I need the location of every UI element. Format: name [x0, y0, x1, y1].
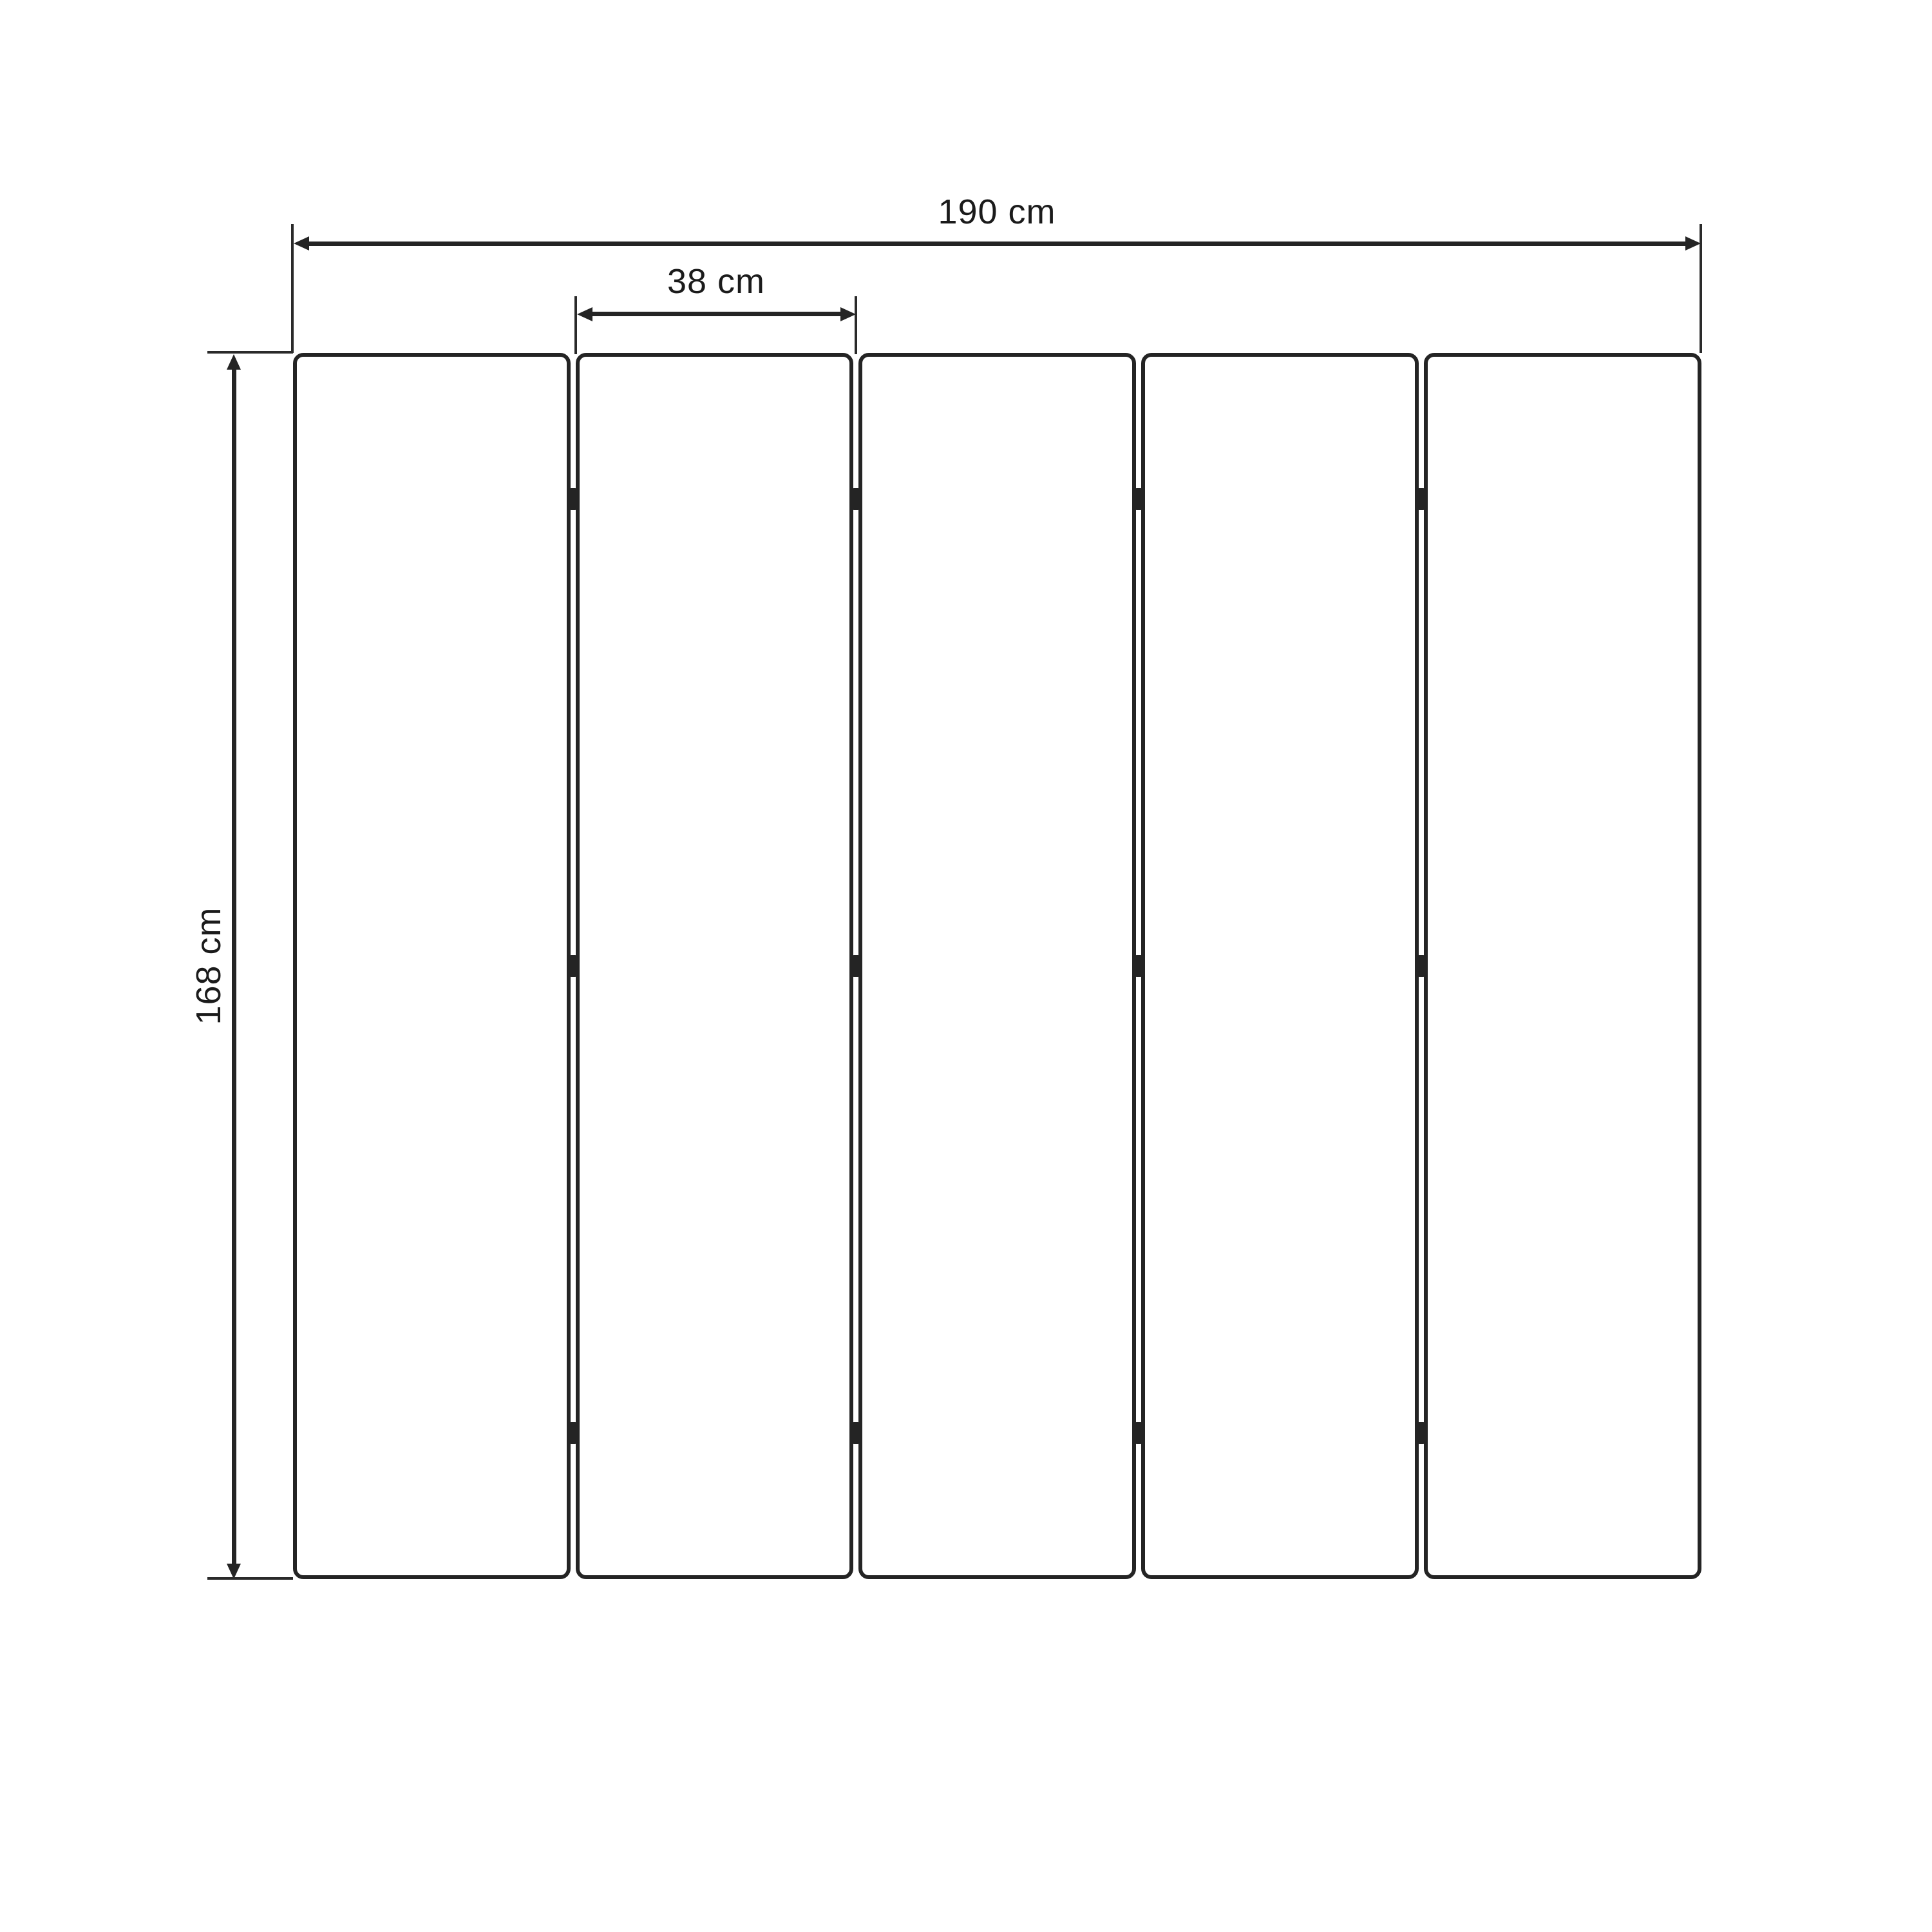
arrowhead-left-icon	[577, 307, 592, 321]
panel-1	[293, 353, 571, 1579]
height-extension-line-top	[207, 351, 293, 354]
hinge-icon	[569, 488, 578, 510]
height-dimension-line	[232, 367, 236, 1566]
panel-width-extension-line-left	[574, 296, 577, 354]
panel-5	[1424, 353, 1701, 1579]
total-width-label: 190 cm	[900, 193, 1094, 231]
panel-width-dimension-line	[591, 312, 842, 316]
hinge-icon	[1417, 488, 1426, 510]
panel-width-extension-line-right	[855, 296, 857, 354]
panel-2	[576, 353, 853, 1579]
panel-3	[858, 353, 1136, 1579]
hinge-icon	[851, 955, 860, 977]
panel-width-label: 38 cm	[620, 262, 813, 301]
hinge-icon	[569, 955, 578, 977]
arrowhead-left-icon	[294, 236, 309, 251]
arrowhead-right-icon	[840, 307, 856, 321]
hinge-icon	[1134, 955, 1143, 977]
height-extension-line-bottom	[207, 1577, 293, 1580]
total-width-extension-line-left	[291, 224, 294, 353]
hinge-icon	[1417, 955, 1426, 977]
hinge-icon	[569, 1422, 578, 1444]
drawing-canvas: 190 cm 38 cm 168 cm	[0, 0, 1932, 1932]
panel-4	[1141, 353, 1419, 1579]
hinge-icon	[1134, 488, 1143, 510]
arrowhead-right-icon	[1685, 236, 1701, 251]
hinge-icon	[851, 1422, 860, 1444]
total-width-dimension-line	[308, 241, 1687, 246]
arrowhead-up-icon	[227, 354, 241, 370]
height-label: 168 cm	[189, 907, 228, 1025]
hinge-icon	[1417, 1422, 1426, 1444]
total-width-extension-line-right	[1700, 224, 1702, 353]
hinge-icon	[1134, 1422, 1143, 1444]
hinge-icon	[851, 488, 860, 510]
